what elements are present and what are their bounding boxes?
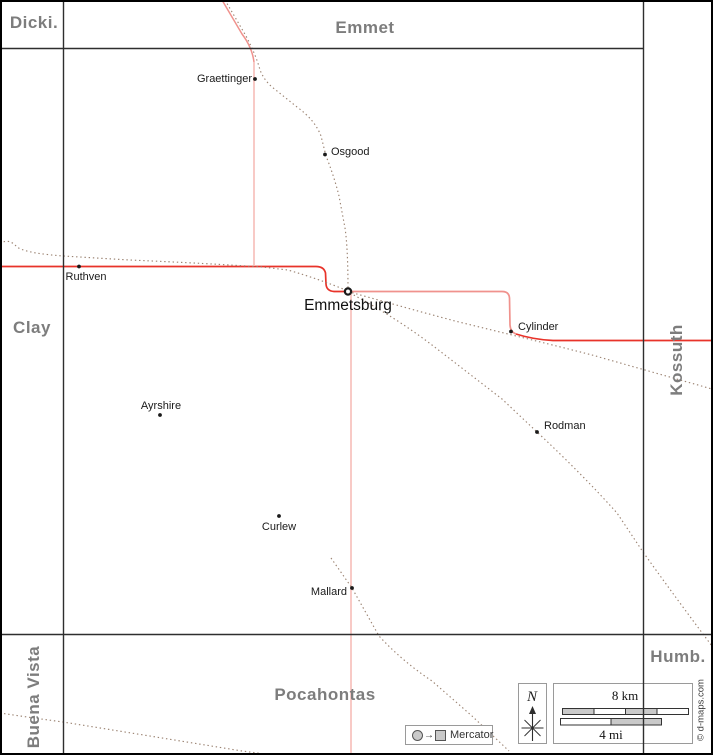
- county-label-emmet: Emmet: [335, 18, 394, 38]
- town-dot-osgood: [323, 153, 327, 157]
- town-dot-ayrshire: [158, 413, 162, 417]
- copyright-text: © d-maps.com: [696, 679, 707, 741]
- town-label-emmetsburg: Emmetsburg: [304, 297, 392, 315]
- town-label-mallard: Mallard: [311, 586, 347, 598]
- town-label-ruthven: Ruthven: [66, 271, 107, 283]
- town-label-curlew: Curlew: [262, 521, 296, 533]
- town-label-osgood: Osgood: [331, 146, 370, 158]
- county-map: N 8 km 4 mi → Mercato: [0, 0, 713, 755]
- borders-markers-layer: [0, 0, 713, 755]
- county-label-pocahontas: Pocahontas: [274, 685, 375, 705]
- county-seat-ring-icon: [345, 288, 351, 294]
- town-dot-graettinger: [253, 77, 257, 81]
- town-label-rodman: Rodman: [544, 420, 586, 432]
- town-dot-ruthven: [77, 265, 81, 269]
- town-dot-curlew: [277, 514, 281, 518]
- county-label-dickinson: Dicki.: [10, 13, 58, 33]
- county-label-kossuth: Kossuth: [667, 324, 687, 396]
- town-dots: [77, 77, 539, 590]
- county-label-humboldt: Humb.: [650, 647, 705, 667]
- town-dot-rodman: [535, 430, 539, 434]
- town-label-cylinder: Cylinder: [518, 321, 558, 333]
- county-label-clay: Clay: [13, 318, 51, 338]
- town-dot-mallard: [350, 586, 354, 590]
- town-label-graettinger: Graettinger: [197, 73, 252, 85]
- county-label-buena-vista: Buena Vista: [24, 646, 44, 749]
- map-frame: [1, 1, 712, 754]
- town-label-ayrshire: Ayrshire: [141, 400, 181, 412]
- town-dot-cylinder: [509, 330, 513, 334]
